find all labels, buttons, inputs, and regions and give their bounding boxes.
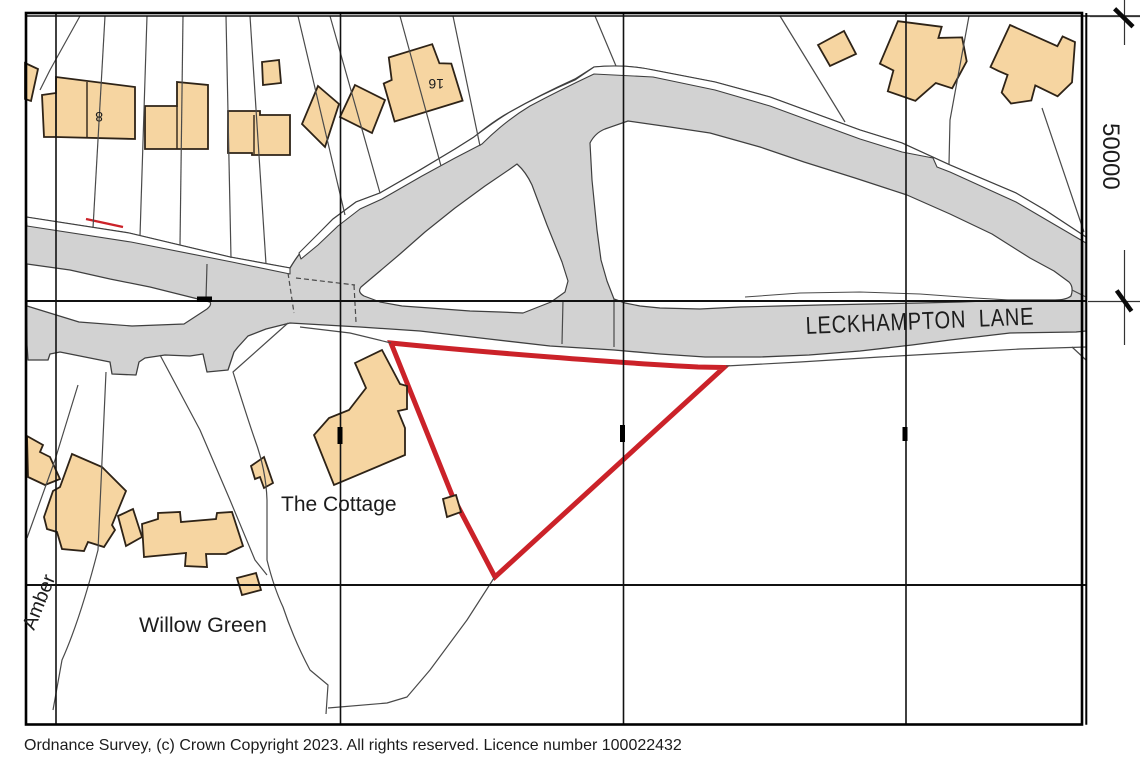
svg-text:The Cottage: The Cottage <box>281 493 397 516</box>
svg-text:8: 8 <box>95 109 103 125</box>
svg-text:Willow Green: Willow Green <box>139 613 267 637</box>
svg-text:Ordnance Survey, (c) Crown Cop: Ordnance Survey, (c) Crown Copyright 202… <box>24 737 682 754</box>
svg-text:16: 16 <box>428 76 444 92</box>
svg-text:50000: 50000 <box>1097 123 1124 190</box>
